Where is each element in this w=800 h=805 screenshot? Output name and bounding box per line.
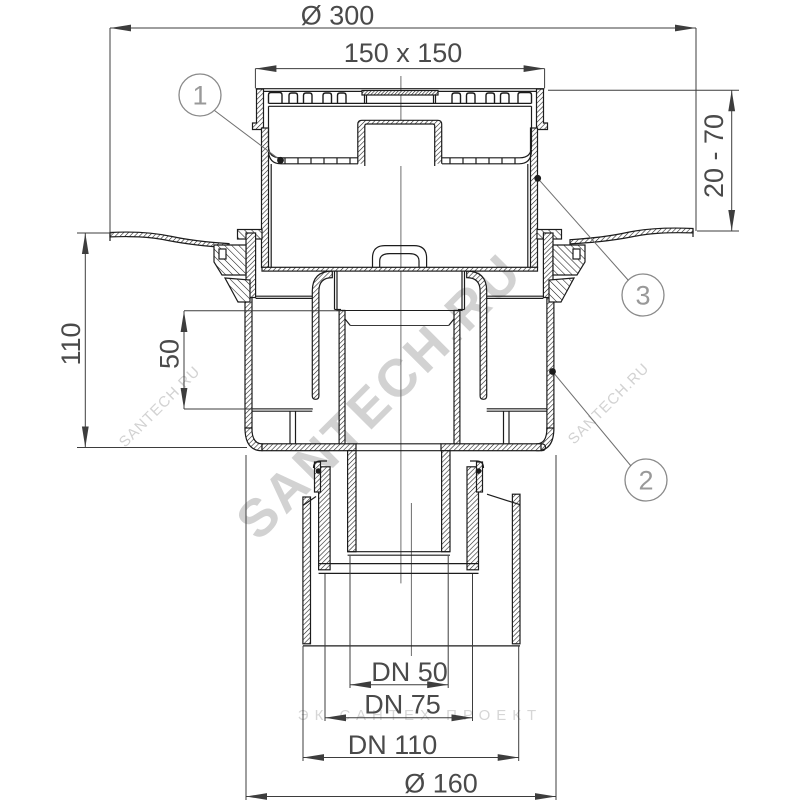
svg-text:Ø 160: Ø 160 [404, 769, 478, 799]
svg-text:DN 75: DN 75 [364, 690, 441, 720]
svg-text:20 - 70: 20 - 70 [699, 114, 729, 198]
svg-text:DN 50: DN 50 [371, 657, 448, 687]
svg-text:Ø 300: Ø 300 [301, 1, 375, 31]
svg-text:1: 1 [192, 81, 207, 111]
svg-text:2: 2 [638, 466, 653, 496]
svg-text:3: 3 [635, 281, 650, 311]
svg-text:150 x 150: 150 x 150 [344, 38, 463, 68]
svg-text:110: 110 [56, 322, 86, 365]
svg-text:DN 110: DN 110 [348, 730, 438, 760]
svg-text:50: 50 [155, 339, 185, 369]
